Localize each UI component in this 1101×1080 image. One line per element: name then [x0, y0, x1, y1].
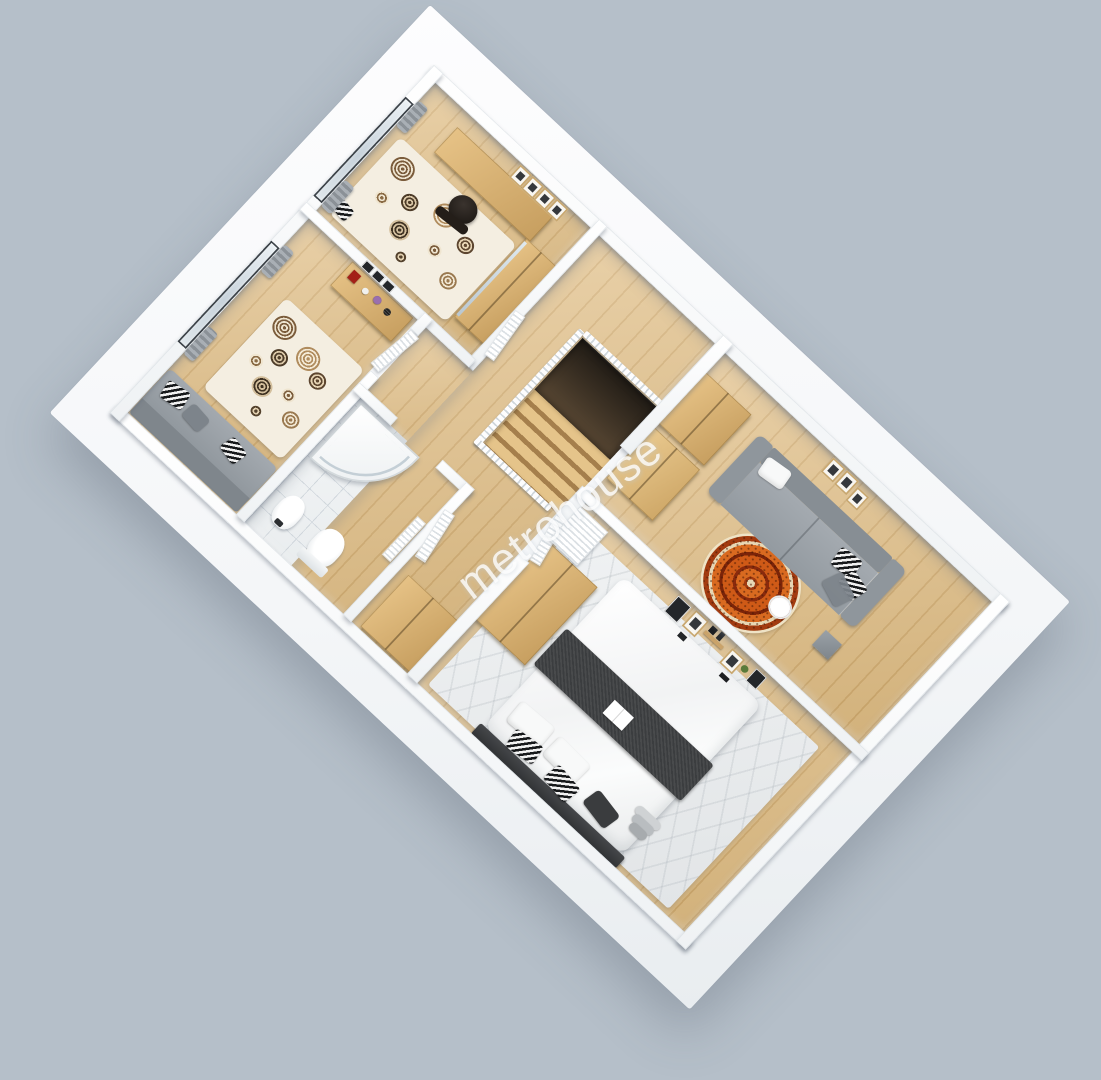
dresser-red-box: [347, 270, 361, 284]
dresser-white-vase: [361, 286, 371, 296]
shelf-black-object: [719, 672, 730, 683]
shelf-plant: [739, 664, 750, 675]
floorplan-render: metrohouse: [0, 0, 1101, 1080]
dresser-dark-vase: [382, 307, 393, 318]
dresser-flower-vase: [371, 294, 383, 306]
shelf-black-object: [677, 631, 687, 641]
